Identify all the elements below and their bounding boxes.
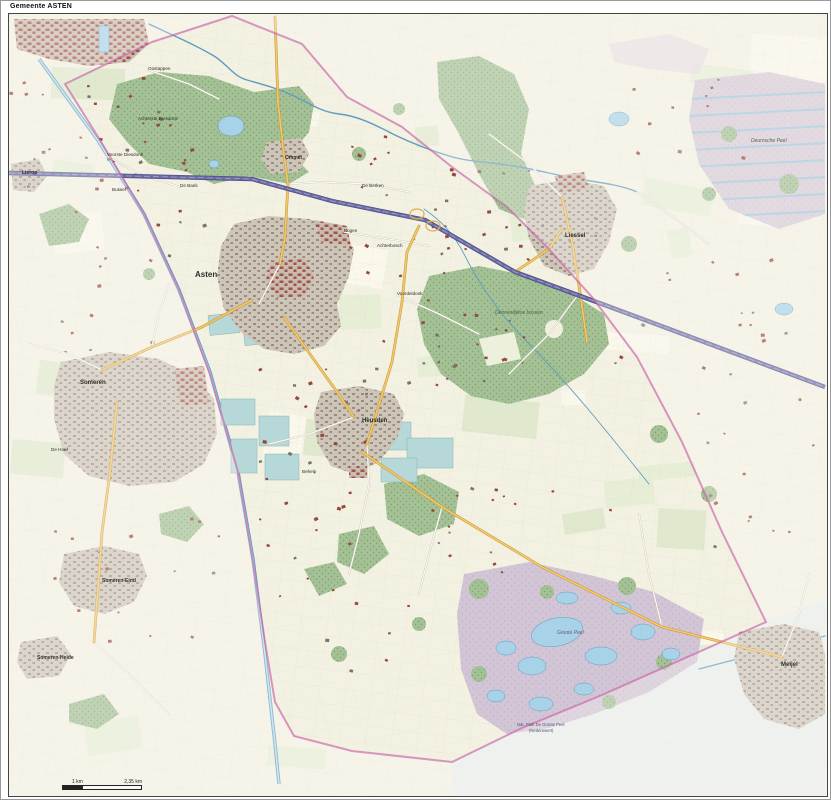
label-someren-heide: Someren-Heide [37, 655, 74, 661]
farm-building [519, 245, 523, 248]
scale-seg-dark [63, 786, 83, 789]
farm-building [421, 321, 425, 324]
label-dennendijkse-bossen: Dennendijkse bossen [495, 310, 543, 316]
label-voordeldonk: Voordeldonk [397, 291, 423, 296]
scale-mid-label: 1 km [72, 779, 83, 785]
lake-oostappen [218, 116, 244, 136]
farm-building [156, 223, 160, 226]
farm-building [363, 380, 367, 383]
label-asten: Asten [195, 270, 217, 279]
farm-building [445, 199, 448, 202]
farm-building [259, 518, 261, 520]
forest-on-heath [469, 579, 489, 599]
farm-building [504, 247, 508, 251]
farm-building [307, 578, 309, 580]
map-title: Gemeente ASTEN [10, 3, 72, 10]
label-groote-peel: Groote Peel [557, 630, 585, 636]
forest-on-heath [471, 666, 487, 682]
label-lierop: Lierop [22, 170, 37, 176]
farm-building [142, 77, 146, 80]
forest-patch [331, 646, 347, 662]
forest-patch [412, 617, 426, 631]
label-liessel: Liessel [565, 233, 586, 239]
farm-building [456, 495, 458, 497]
farm-building [494, 488, 498, 491]
map-frame: AstenSomerenLiesselMeijelHeusdenOmmelSom… [8, 13, 828, 797]
scale-seg-light [83, 786, 142, 789]
farm-building [117, 106, 120, 108]
label-de-berken: De Berken [362, 183, 384, 188]
farm-building [94, 103, 97, 105]
farm-building [325, 639, 329, 643]
farm-building [438, 361, 440, 363]
farm-building [407, 605, 410, 607]
pond [209, 160, 219, 168]
label-ommel: Ommel [285, 155, 303, 161]
label-bussel: Bussel [112, 187, 126, 192]
farm-building [315, 529, 317, 531]
map-page: Gemeente ASTEN [0, 0, 831, 800]
forest-on-heath [618, 577, 636, 595]
farm-building [293, 384, 296, 387]
farm-building [423, 362, 426, 364]
farm-building [435, 334, 439, 337]
label-behelp: Behelp [302, 469, 317, 474]
farm-building [325, 369, 327, 371]
label-heusden: Heusden [362, 418, 388, 424]
farm-building [485, 357, 488, 360]
farm-building [388, 632, 391, 634]
label-deurnsche-peel: Deurnsche Peel [751, 138, 787, 144]
farm-building [523, 336, 526, 338]
label-de-bank: De Bank [180, 183, 198, 188]
label-oostappen: Oostappen [148, 66, 171, 71]
map-canvas: AstenSomerenLiesselMeijelHeusdenOmmelSom… [9, 14, 827, 796]
scale-bar-graphic [62, 785, 142, 790]
scale-bar: 1 km 2,35 km [62, 779, 142, 790]
label-achterste-diesdonk: Achterste Diesdonk [138, 116, 179, 121]
farm-building [487, 210, 491, 213]
label-someren-eind: Someren-Eind [102, 578, 136, 584]
urban-heusden-industry [349, 466, 367, 478]
farm-building [434, 208, 437, 210]
label-bogen: Bogen [344, 228, 358, 233]
forest-on-heath [540, 585, 554, 599]
farm-building [448, 532, 450, 534]
farm-building [614, 362, 616, 364]
farm-building [87, 85, 90, 87]
label-natpark-line2: (Nederweert) [529, 728, 554, 733]
label-natpark-line1: Nat. Park De Groote Peel [517, 722, 565, 727]
label-achterbosch: Achterbosch [377, 243, 403, 248]
forest-patch [650, 425, 668, 443]
scale-end-label: 2,35 km [124, 779, 142, 785]
label-someren: Someren [80, 380, 106, 386]
label-voorste-diesdonk: Voorste Diesdonk [107, 152, 144, 157]
farm-building [265, 478, 268, 480]
farm-building [387, 152, 390, 154]
label-meijel: Meijel [781, 662, 798, 668]
label-de-hoef: De Hoef [51, 447, 69, 452]
farm-building [320, 434, 324, 437]
farm-building [182, 162, 186, 165]
farm-building [375, 368, 379, 371]
